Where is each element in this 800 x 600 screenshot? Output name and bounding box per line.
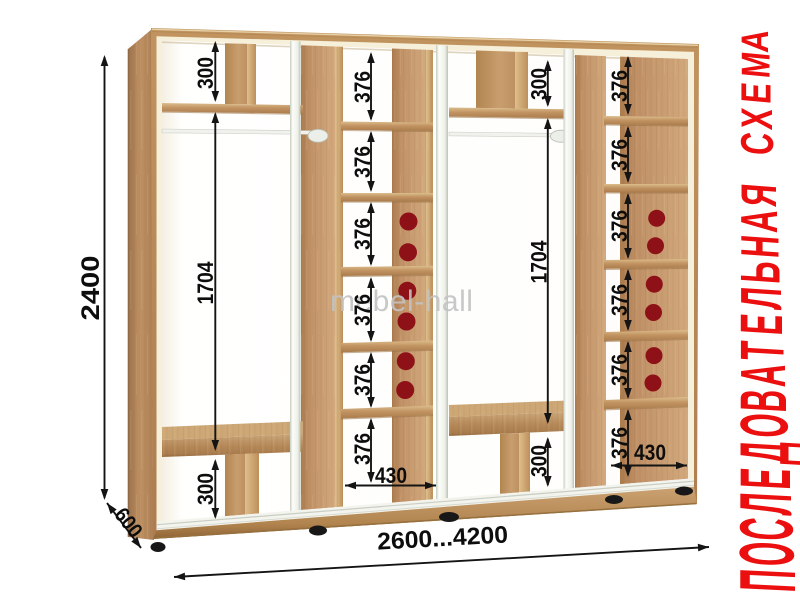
svg-text:Е: Е: [732, 81, 780, 106]
svg-text:С: С: [732, 130, 784, 157]
svg-text:300: 300: [527, 68, 552, 100]
svg-text:376: 376: [350, 294, 375, 326]
svg-text:Ь: Ь: [729, 259, 792, 286]
svg-text:Х: Х: [733, 106, 783, 131]
svg-text:376: 376: [607, 354, 632, 386]
svg-text:376: 376: [350, 433, 375, 465]
svg-text:С: С: [726, 516, 800, 543]
svg-text:А: А: [731, 207, 789, 234]
svg-text:М: М: [733, 50, 779, 80]
svg-text:300: 300: [527, 445, 552, 477]
svg-text:А: А: [734, 28, 777, 55]
svg-text:376: 376: [607, 210, 632, 242]
svg-text:376: 376: [350, 218, 375, 250]
svg-text:Я: Я: [730, 182, 786, 209]
svg-text:Д: Д: [727, 439, 800, 465]
svg-text:1704: 1704: [527, 240, 552, 283]
svg-text:376: 376: [350, 146, 375, 178]
svg-text:А: А: [728, 362, 799, 389]
svg-text:Е: Е: [725, 466, 800, 491]
svg-text:300: 300: [193, 473, 218, 505]
svg-text:П: П: [723, 567, 800, 594]
svg-text:1704: 1704: [193, 261, 218, 304]
svg-text:Л: Л: [729, 285, 794, 311]
svg-text:430: 430: [375, 463, 407, 488]
svg-text:О: О: [727, 411, 800, 439]
svg-text:300: 300: [193, 57, 218, 89]
svg-text:В: В: [726, 387, 800, 414]
svg-text:Л: Л: [725, 491, 800, 517]
svg-text:376: 376: [607, 70, 632, 102]
svg-text:Е: Е: [730, 312, 796, 337]
svg-text:376: 376: [607, 284, 632, 316]
svg-text:376: 376: [350, 71, 375, 103]
svg-text:376: 376: [607, 427, 632, 459]
svg-text:376: 376: [350, 364, 375, 396]
svg-text:430: 430: [634, 440, 666, 465]
svg-text:О: О: [723, 540, 800, 568]
svg-text:2400: 2400: [77, 256, 105, 321]
svg-text:376: 376: [607, 139, 632, 171]
svg-text:Н: Н: [731, 233, 791, 260]
